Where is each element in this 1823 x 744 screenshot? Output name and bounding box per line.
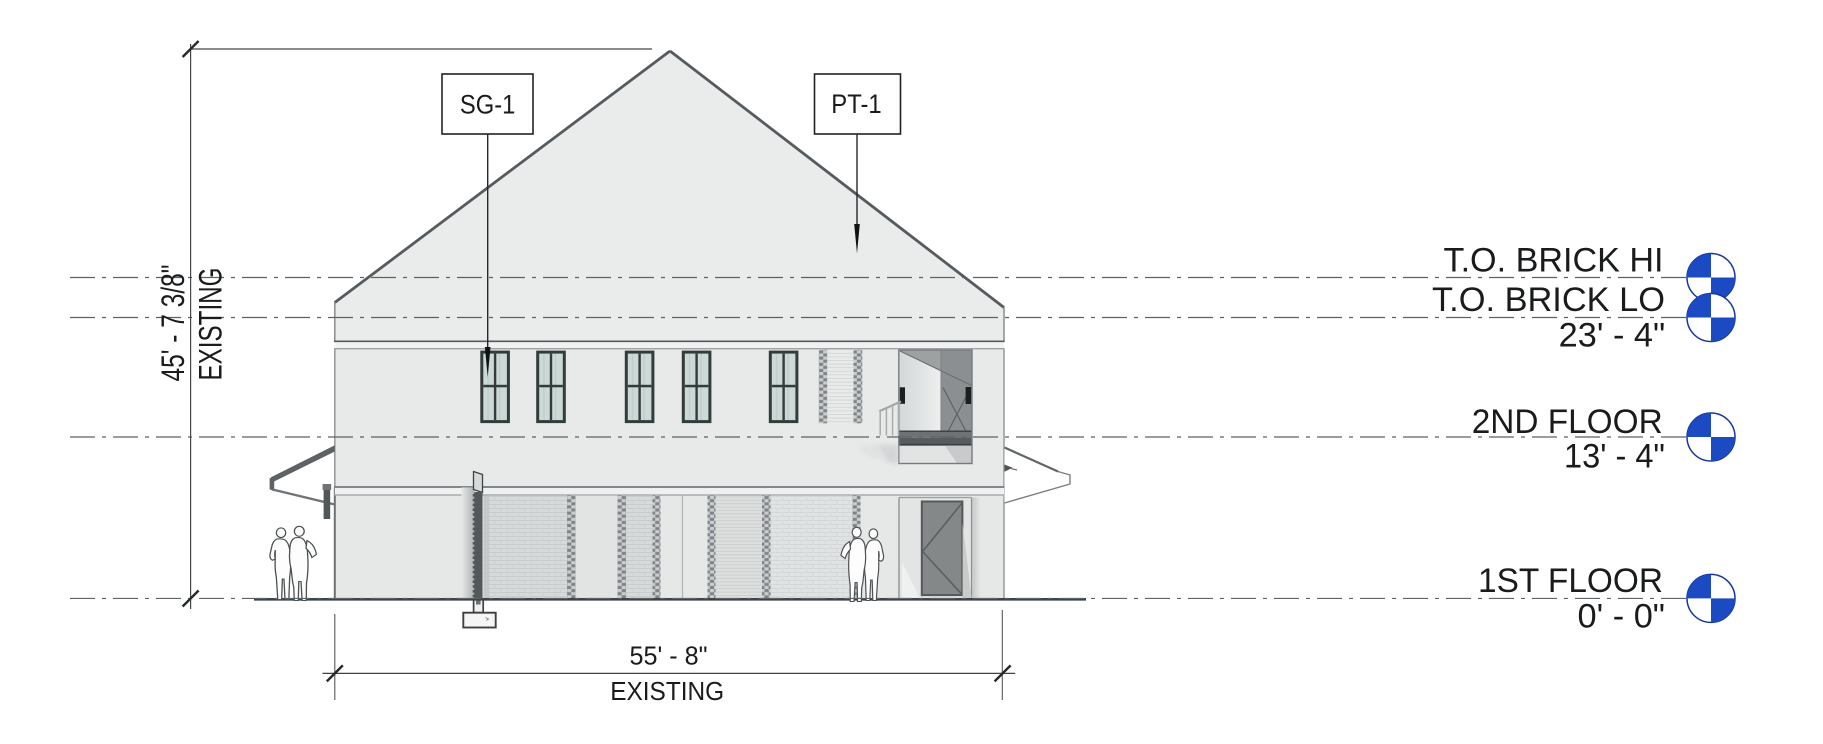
svg-text:EXISTING: EXISTING: [193, 268, 229, 381]
svg-text:T.O. BRICK LO: T.O. BRICK LO: [1432, 281, 1665, 319]
svg-text:0' - 0": 0' - 0": [1578, 598, 1666, 636]
svg-text:PT-1: PT-1: [831, 89, 881, 119]
svg-text:SG-1: SG-1: [460, 90, 516, 120]
svg-text:13' - 4": 13' - 4": [1564, 438, 1665, 476]
svg-text:1ST FLOOR: 1ST FLOOR: [1478, 562, 1663, 600]
svg-text:55' - 8": 55' - 8": [630, 640, 708, 670]
svg-text:2ND FLOOR: 2ND FLOOR: [1472, 403, 1663, 441]
svg-text:45' - 7 3/8": 45' - 7 3/8": [155, 265, 191, 382]
svg-text:23' - 4": 23' - 4": [1559, 317, 1666, 355]
svg-text:T.O. BRICK HI: T.O. BRICK HI: [1444, 242, 1664, 280]
svg-text:EXISTING: EXISTING: [610, 678, 724, 706]
